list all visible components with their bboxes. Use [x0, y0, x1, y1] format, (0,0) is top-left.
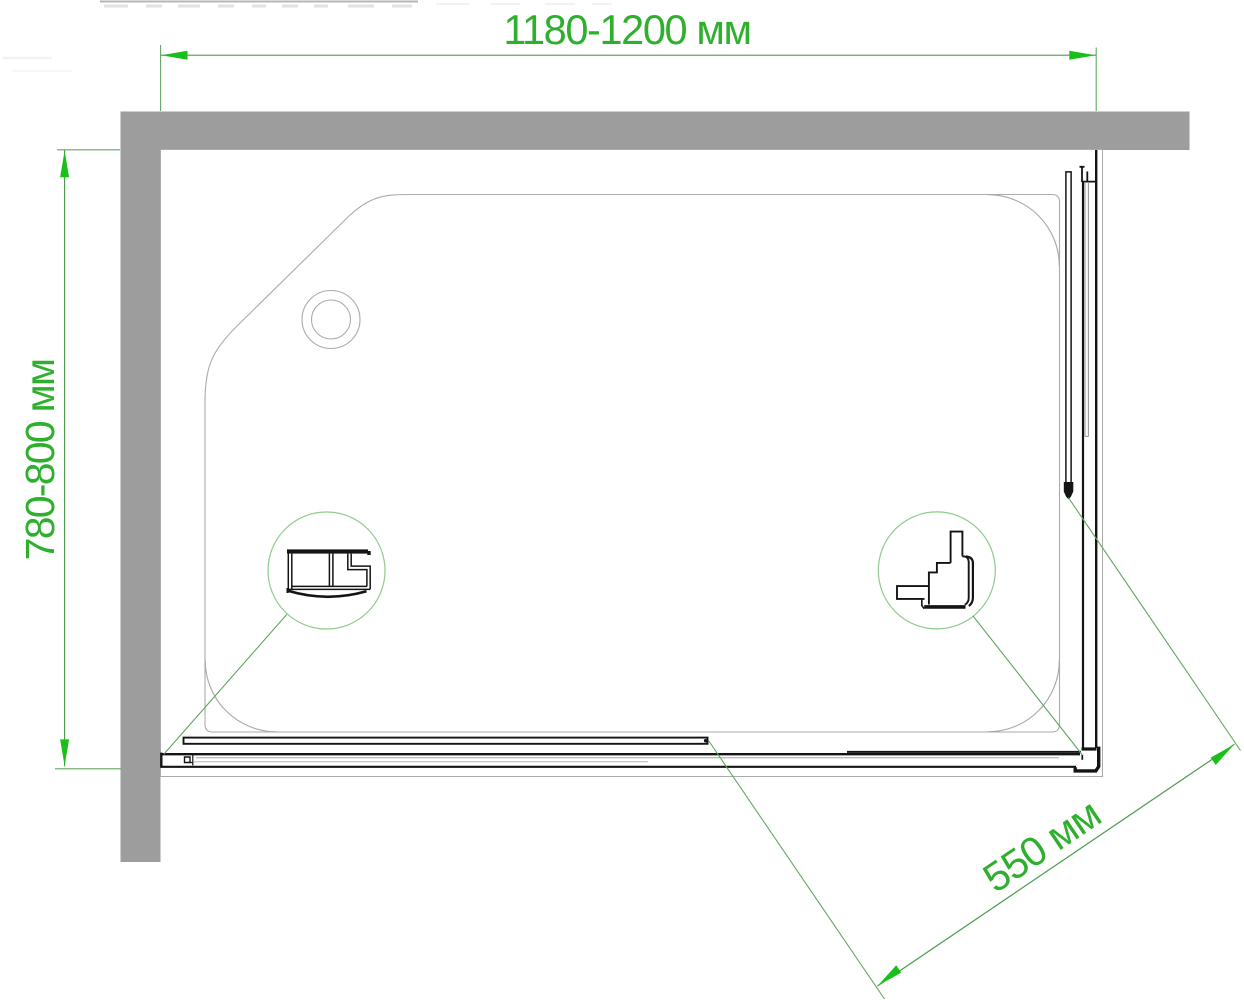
svg-text:1180-1200 мм: 1180-1200 мм [503, 6, 750, 53]
svg-text:780-800 мм: 780-800 мм [17, 360, 63, 561]
